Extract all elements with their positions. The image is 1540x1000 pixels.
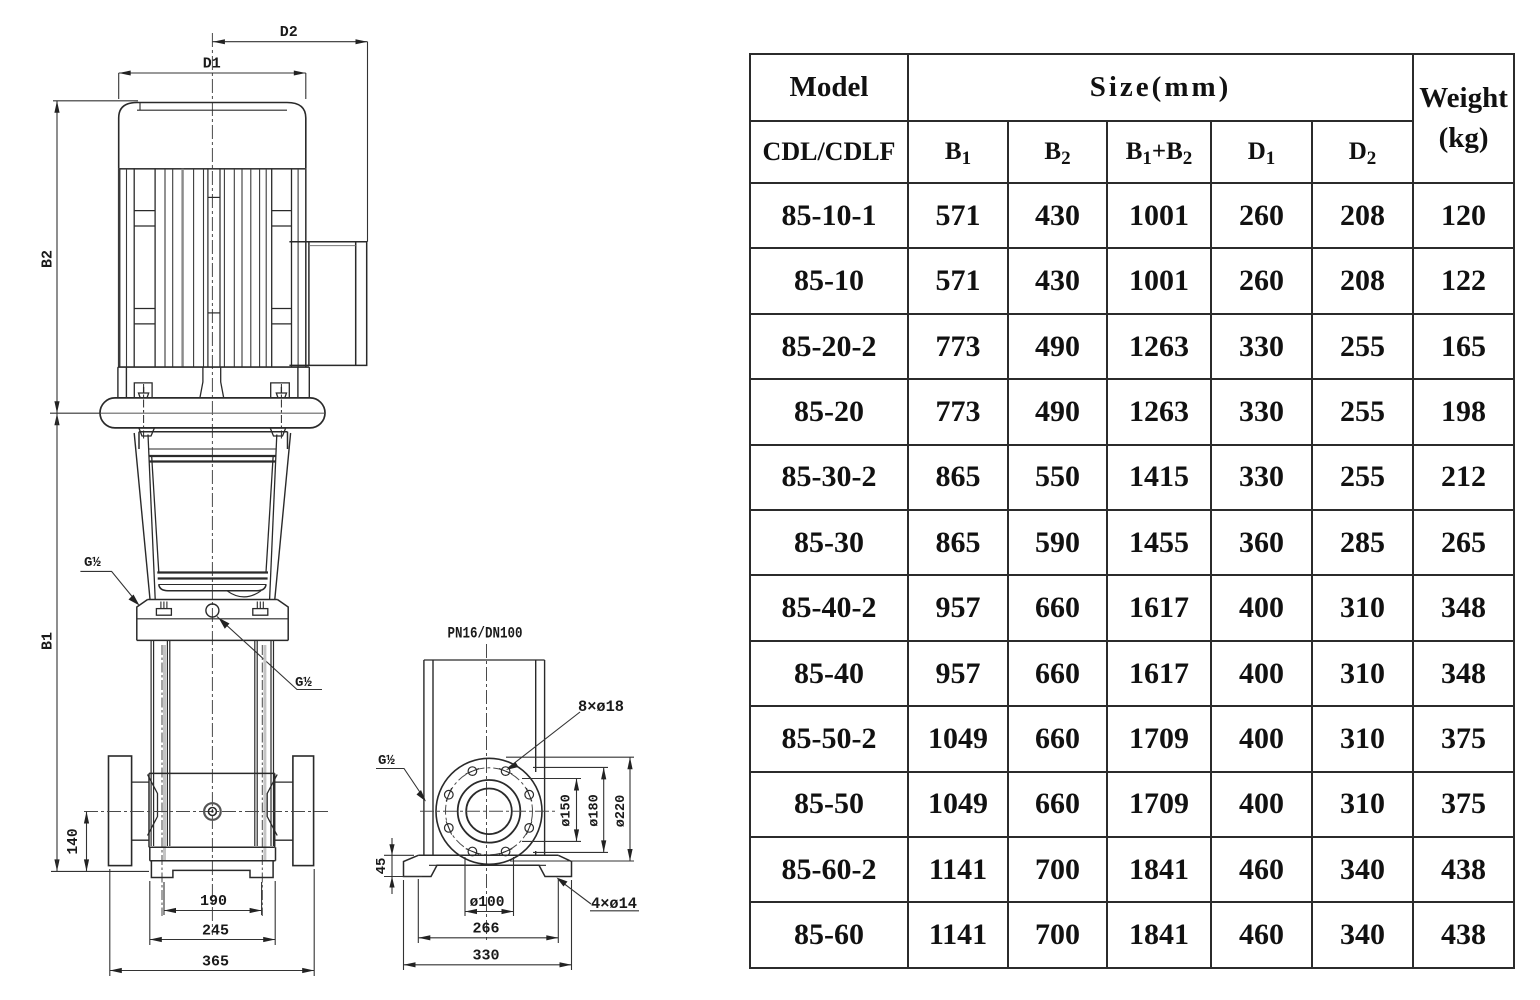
svg-text:B2: B2 bbox=[40, 250, 57, 268]
svg-text:B1: B1 bbox=[40, 632, 57, 650]
svg-text:ø220: ø220 bbox=[614, 795, 629, 827]
svg-text:G½: G½ bbox=[84, 555, 101, 571]
svg-text:45: 45 bbox=[374, 858, 390, 875]
svg-text:245: 245 bbox=[202, 923, 229, 940]
svg-text:330: 330 bbox=[472, 947, 499, 964]
svg-text:ø180: ø180 bbox=[588, 794, 603, 826]
svg-text:G½: G½ bbox=[295, 675, 312, 691]
svg-text:365: 365 bbox=[202, 954, 229, 971]
svg-text:G½: G½ bbox=[378, 753, 395, 769]
svg-text:140: 140 bbox=[66, 828, 82, 854]
svg-text:190: 190 bbox=[200, 893, 227, 910]
svg-text:8×ø18: 8×ø18 bbox=[578, 698, 624, 716]
svg-text:PN16/DN100: PN16/DN100 bbox=[448, 625, 523, 643]
svg-text:D2: D2 bbox=[280, 24, 298, 41]
svg-text:4×ø14: 4×ø14 bbox=[591, 895, 637, 913]
svg-text:266: 266 bbox=[472, 920, 499, 937]
svg-text:ø100: ø100 bbox=[470, 895, 505, 911]
svg-text:ø150: ø150 bbox=[560, 794, 575, 826]
svg-text:D1: D1 bbox=[203, 56, 221, 73]
